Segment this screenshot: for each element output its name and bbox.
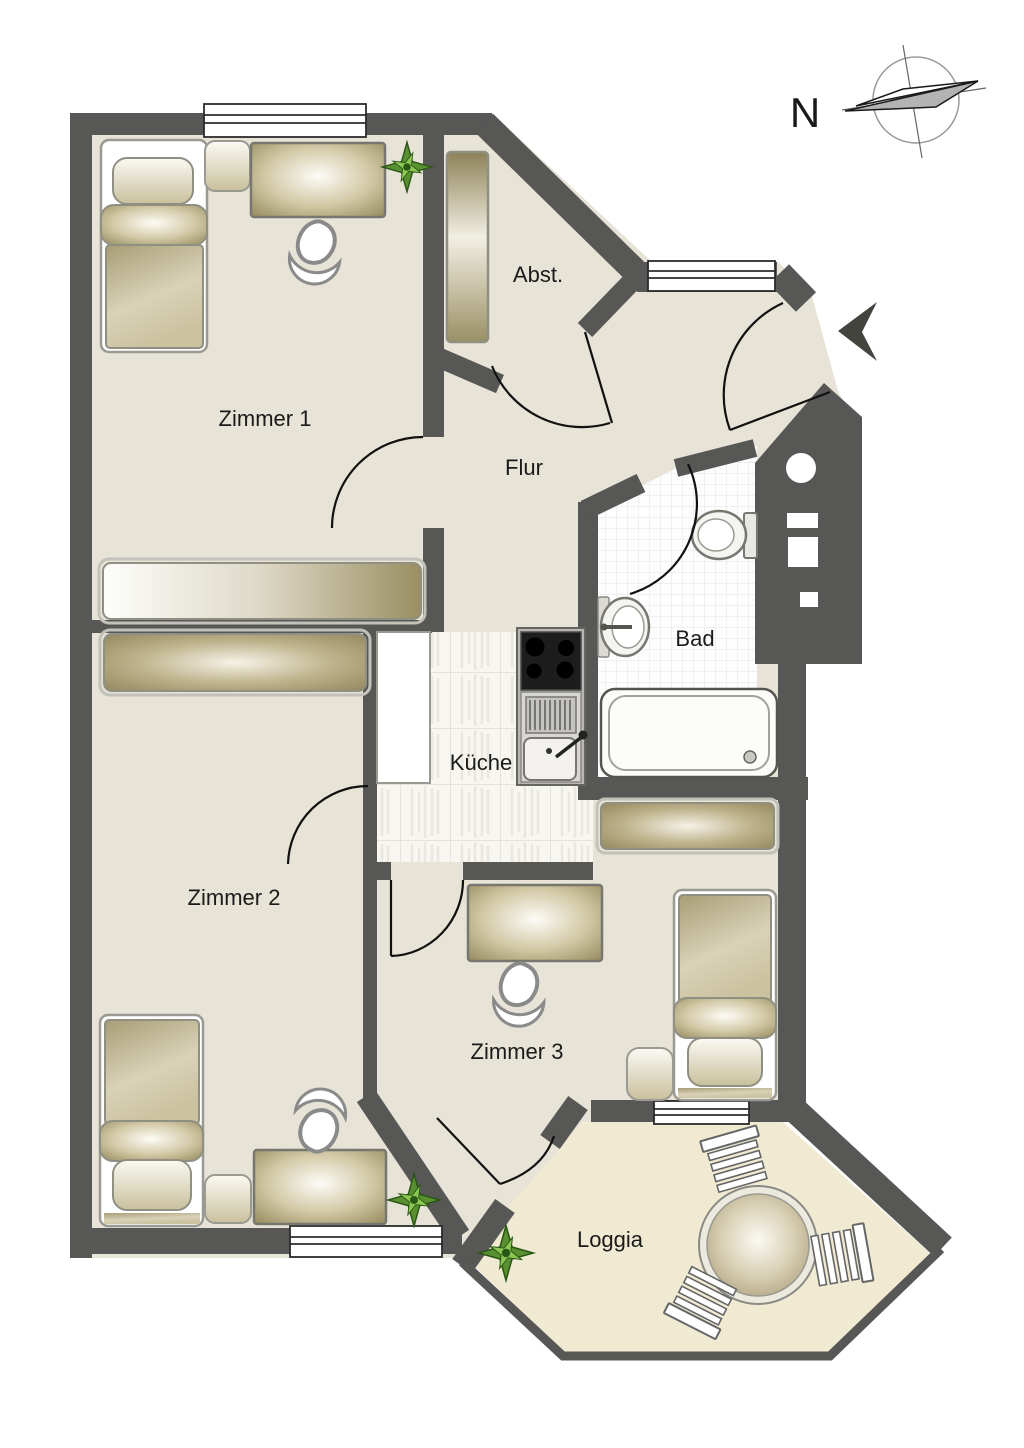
wall-zimmer2-kitchen: [363, 632, 377, 1100]
room-label-flur: Flur: [505, 455, 543, 480]
bed-zimmer3: [674, 890, 776, 1100]
wardrobe-zimmer3: [597, 799, 778, 853]
bed-zimmer2: [100, 1015, 203, 1226]
burner: [527, 664, 542, 679]
wardrobe-zimmer2: [100, 630, 370, 695]
window-entrance: [648, 261, 775, 291]
room-label-loggia: Loggia: [577, 1227, 644, 1252]
room-label-zimmer3: Zimmer 3: [471, 1039, 564, 1064]
room-label-kueche: Küche: [450, 750, 512, 775]
garden-table: [707, 1194, 809, 1296]
wall-entrance-corner: [779, 274, 806, 302]
room-label-zimmer1: Zimmer 1: [219, 406, 312, 431]
nightstand-zimmer3: [627, 1048, 673, 1100]
burner: [557, 662, 574, 679]
room-label-zimmer2: Zimmer 2: [188, 885, 281, 910]
room-label-bad: Bad: [675, 626, 714, 651]
wall-zimmer3-top-a: [377, 862, 391, 880]
bathtub-drain: [744, 751, 756, 763]
sink-drainer: [526, 697, 576, 733]
kitchen-unit: [517, 628, 588, 785]
window-zimmer1-top: [204, 104, 366, 137]
shaft-pipe-icon: [800, 592, 818, 607]
bath-sink: [598, 597, 649, 657]
window-zimmer3-loggia: [654, 1101, 749, 1124]
window-zimmer2-bottom: [290, 1226, 442, 1257]
entrance-arrow-icon: [838, 302, 877, 361]
north-label: N: [790, 89, 820, 136]
bathtub: [601, 689, 777, 777]
burner: [558, 640, 574, 656]
burner: [526, 638, 545, 657]
compass-rose: N: [790, 45, 986, 158]
floor-plan-drawing: Zimmer 1 Abst. Flur Bad Küche Zimmer 2 Z…: [0, 0, 1024, 1448]
shaft-duct-icon: [788, 537, 818, 567]
wall-bad-bottom: [578, 777, 808, 800]
nightstand-zimmer2: [205, 1175, 251, 1223]
wall-zimmer3-top-b: [463, 862, 593, 880]
cabinet-abstellraum: [447, 152, 488, 342]
toilet: [692, 511, 757, 559]
room-label-abstellraum: Abst.: [513, 262, 563, 287]
nightstand-zimmer1: [205, 141, 250, 191]
bed-zimmer1: [101, 140, 207, 352]
wall-zimmer3-right: [778, 800, 806, 1102]
kitchen-counter-left: [377, 632, 430, 783]
desk-zimmer3: [468, 885, 602, 961]
sideboard-zimmer1: [99, 559, 425, 623]
shaft-circle-icon: [786, 453, 816, 483]
wall-zimmer1-right-upper: [423, 135, 444, 437]
desk-zimmer2: [254, 1150, 386, 1224]
floor-plan-page: Zimmer 1 Abst. Flur Bad Küche Zimmer 2 Z…: [0, 0, 1024, 1448]
shaft-vent-icon: [787, 513, 818, 528]
desk-zimmer1: [251, 143, 385, 217]
wall-left: [70, 113, 92, 1258]
